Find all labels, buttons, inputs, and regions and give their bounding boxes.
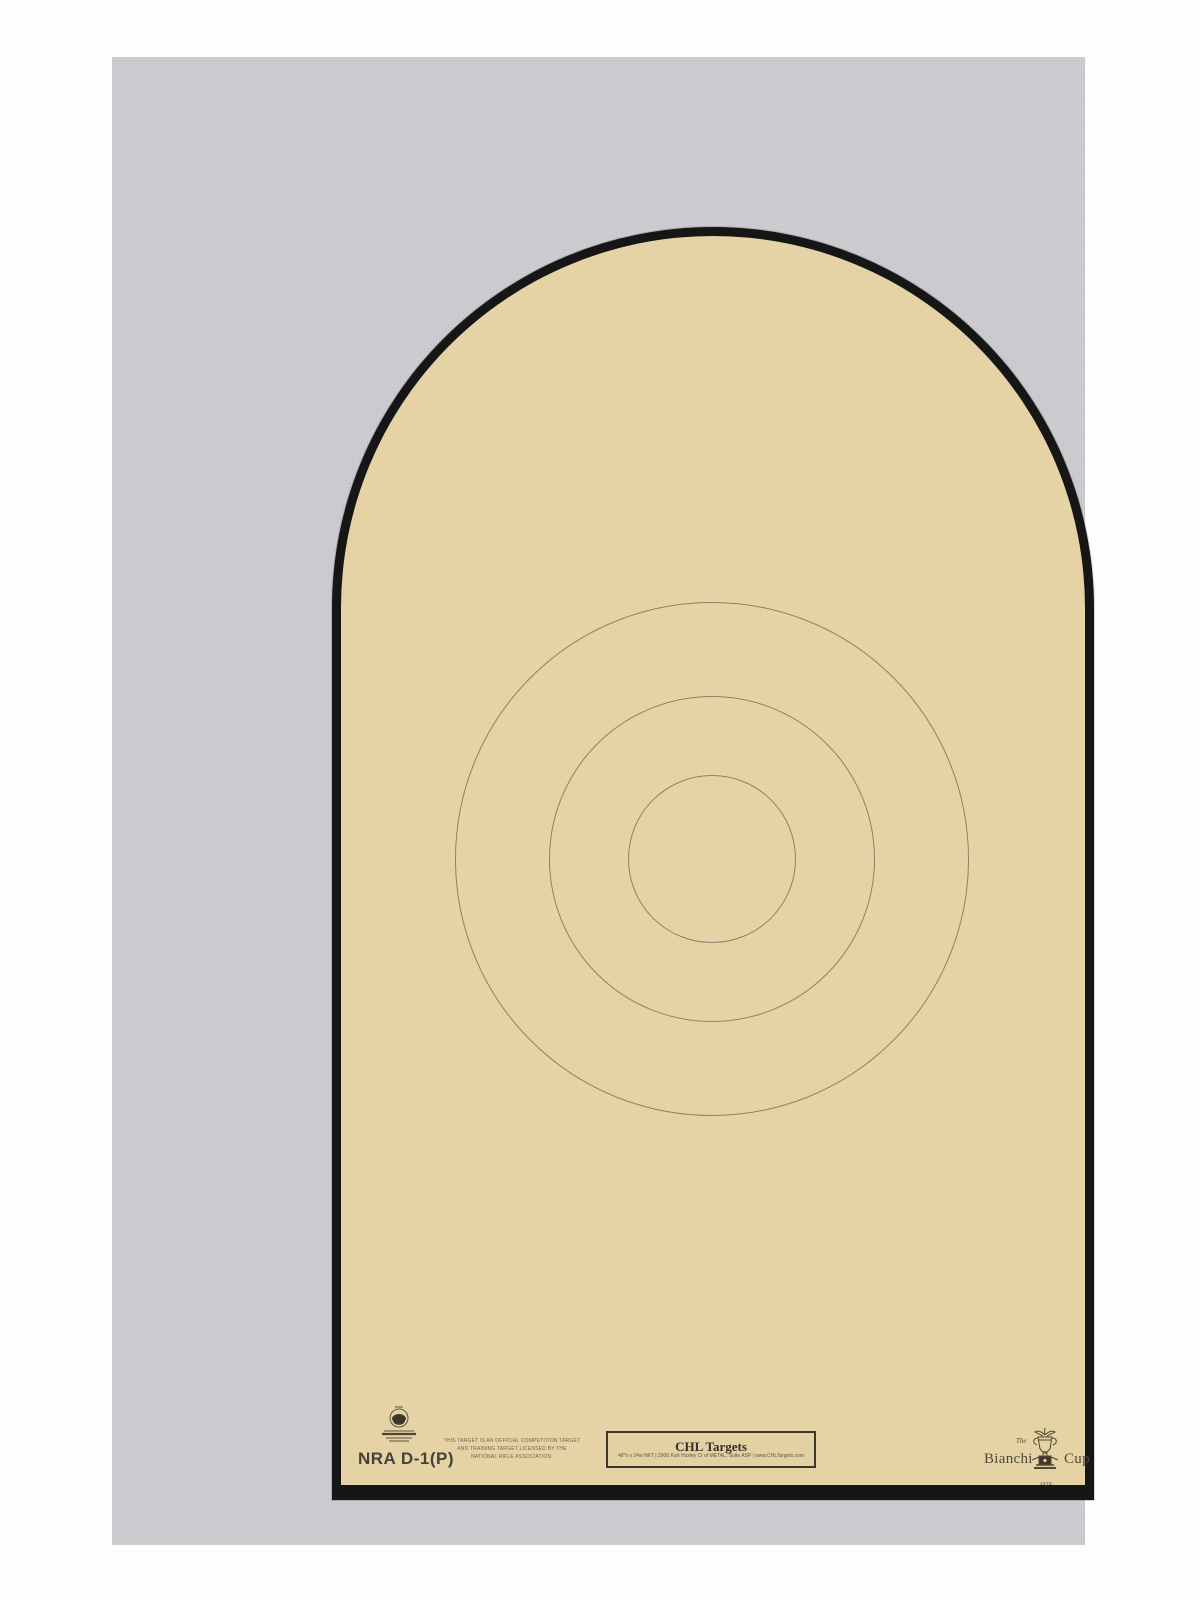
bianchi-year-label: 1979 (1034, 1481, 1058, 1486)
license-line-1: THIS TARGET IS AN OFFICIAL COMPETITION T… (442, 1438, 582, 1446)
nra-license-text: THIS TARGET IS AN OFFICIAL COMPETITION T… (442, 1438, 582, 1461)
maker-title: CHL Targets (675, 1440, 747, 1453)
license-line-2: AND TRAINING TARGET LICENSED BY THE (442, 1446, 582, 1454)
bianchi-the-label: The (1016, 1437, 1027, 1445)
target-sheet: NRA D-1(P) THIS TARGET IS AN OFFICIAL CO… (112, 57, 1085, 1545)
page-background: NRA D-1(P) THIS TARGET IS AN OFFICIAL CO… (0, 0, 1200, 1600)
maker-info-box: CHL Targets 48"h x 24w NKT | 2900 Kurt H… (606, 1431, 816, 1468)
license-line-3: NATIONAL RIFLE ASSOCIATION. (442, 1454, 582, 1462)
maker-details: 48"h x 24w NKT | 2900 Kurt Huxley Ct of … (618, 1454, 804, 1459)
bianchi-word-right: Cup (1064, 1451, 1090, 1468)
nra-seal-icon (380, 1405, 418, 1451)
bianchi-word-left: Bianchi (984, 1451, 1033, 1468)
center-scoring-ring (628, 775, 796, 943)
trophy-icon (1030, 1427, 1060, 1481)
bianchi-cup-logo: The Bianchi (984, 1425, 1096, 1489)
